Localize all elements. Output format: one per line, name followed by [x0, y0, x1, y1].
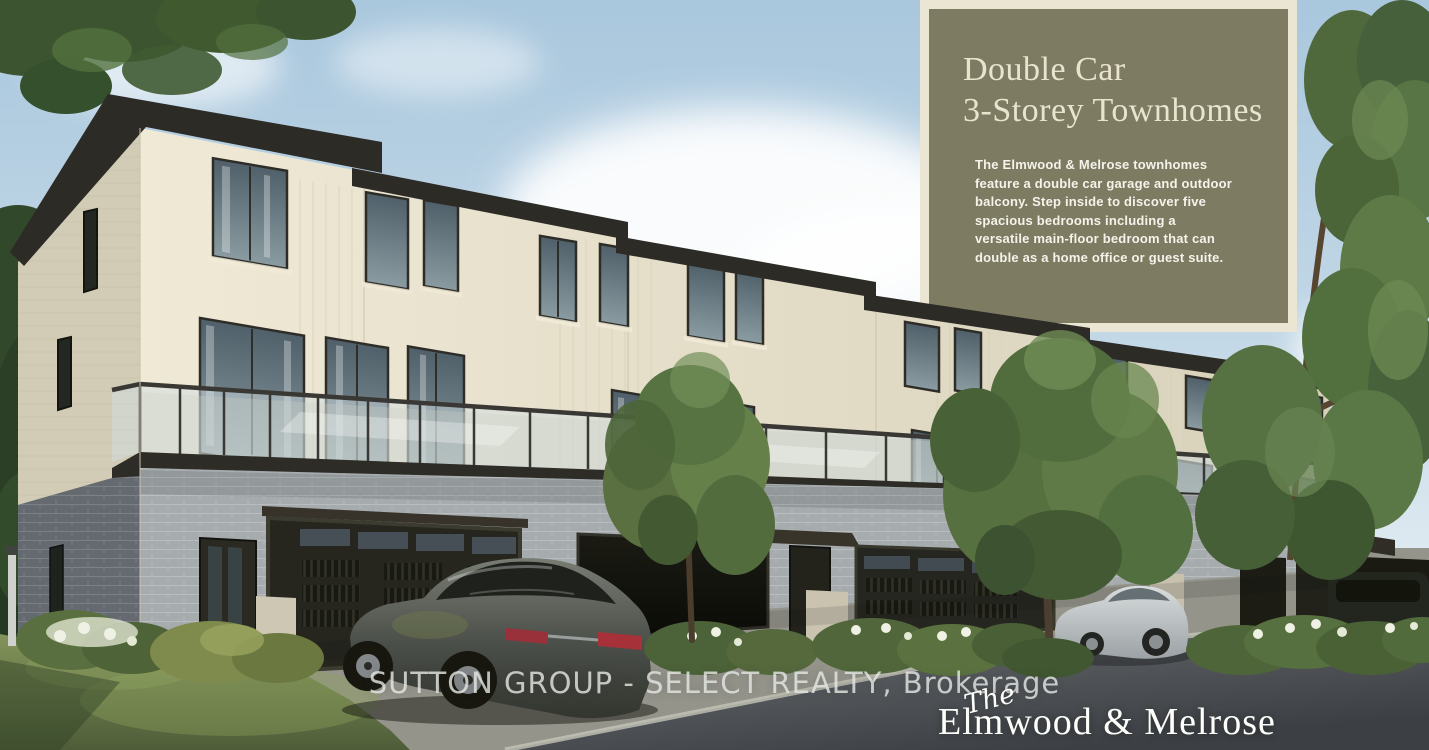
- window: [688, 262, 724, 342]
- end-wall-window: [84, 209, 97, 292]
- trees-right: [1195, 0, 1429, 580]
- side-reflection: [392, 611, 468, 639]
- scene-illustration: [0, 0, 1429, 750]
- window: [905, 322, 939, 392]
- window: [736, 268, 763, 345]
- window: [600, 244, 628, 327]
- window: [366, 192, 408, 289]
- window: [424, 200, 458, 292]
- end-wall-window: [50, 545, 63, 622]
- brokerage-watermark: SUTTON GROUP - SELECT REALTY, Brokerage: [0, 666, 1429, 700]
- window: [955, 328, 981, 394]
- foliage-top-left: [0, 0, 356, 114]
- marketing-image: Double Car 3-Storey Townhomes The Elmwoo…: [0, 0, 1429, 750]
- suv-windows: [1336, 580, 1420, 602]
- project-logo: The Elmwood & Melrose: [938, 700, 1298, 744]
- end-wall-window: [58, 337, 71, 410]
